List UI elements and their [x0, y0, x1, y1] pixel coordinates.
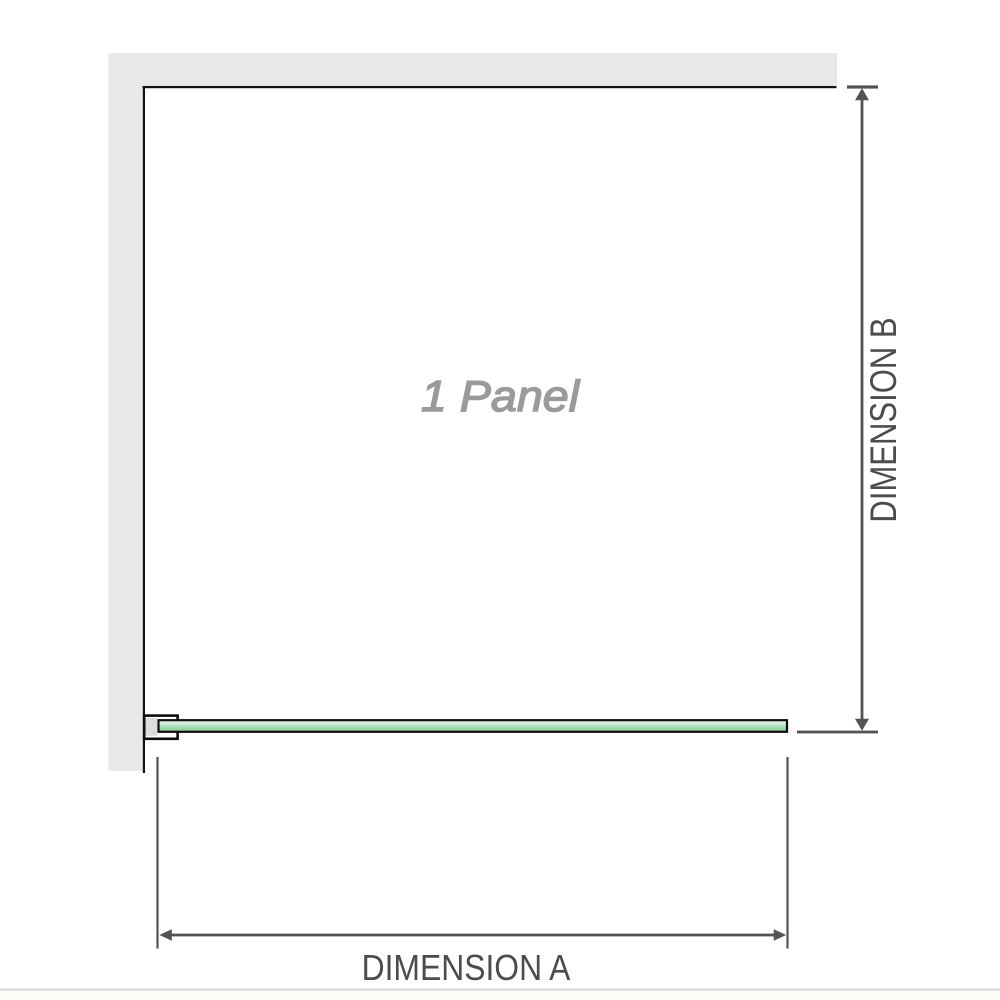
svg-text:DIMENSION B: DIMENSION B — [863, 317, 904, 522]
svg-text:1 Panel: 1 Panel — [421, 371, 581, 420]
svg-text:DIMENSION A: DIMENSION A — [362, 948, 571, 988]
